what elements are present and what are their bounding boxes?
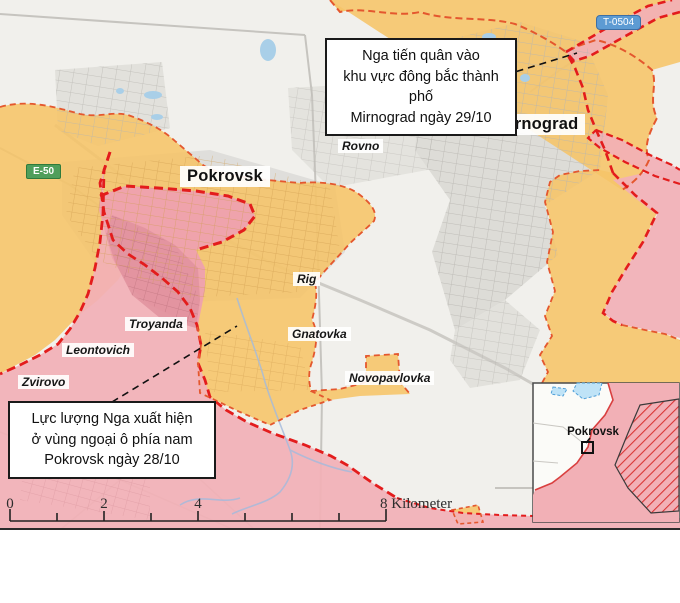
inset-map: Pokrovsk [533, 383, 679, 522]
town-label-gnatovka: Gnatovka [288, 327, 351, 341]
town-label-zvirovo: Zvirovo [18, 375, 69, 389]
main-map: 0 2 4 8 Kilometer Pokrovsk [0, 0, 680, 530]
callout-pokrovsk-line1: Lực lượng Nga xuất hiện [18, 409, 206, 430]
town-label-rovno: Rovno [338, 139, 383, 153]
callout-pokrovsk-line3: Pokrovsk ngày 28/10 [18, 450, 206, 471]
town-label-leontovich: Leontovich [62, 343, 134, 357]
callout-pokrovsk-line2: ở vùng ngoại ô phía nam [18, 430, 206, 451]
city-label-pokrovsk: Pokrovsk [180, 166, 270, 187]
inset-pokrovsk-label: Pokrovsk [567, 426, 619, 438]
legend: Nga kiểm soát trước tháng 2/2022 Khu vực… [0, 530, 680, 603]
scale-tick-0: 0 [6, 496, 14, 512]
town-label-novopavlovka: Novopavlovka [345, 371, 434, 385]
map-figure: 0 2 4 8 Kilometer Pokrovsk [0, 0, 680, 603]
scale-tick-4: 4 [194, 496, 202, 512]
town-label-troyanda: Troyanda [125, 317, 187, 331]
callout-mirnograd-line3: Mirnograd ngày 29/10 [335, 108, 507, 129]
scale-tick-2: 2 [100, 496, 108, 512]
town-label-rig: Rig [293, 272, 320, 286]
scale-end-label: 8 Kilometer [380, 496, 452, 512]
callout-mirnograd: Nga tiến quân vào khu vực đông bắc thành… [325, 38, 517, 136]
road-badge-t0504: T-0504 [596, 15, 641, 30]
callout-mirnograd-line1: Nga tiến quân vào [335, 46, 507, 67]
callout-mirnograd-line2: khu vực đông bắc thành phố [335, 67, 507, 108]
road-badge-e50: E-50 [26, 164, 61, 179]
callout-pokrovsk: Lực lượng Nga xuất hiện ở vùng ngoại ô p… [8, 401, 216, 479]
